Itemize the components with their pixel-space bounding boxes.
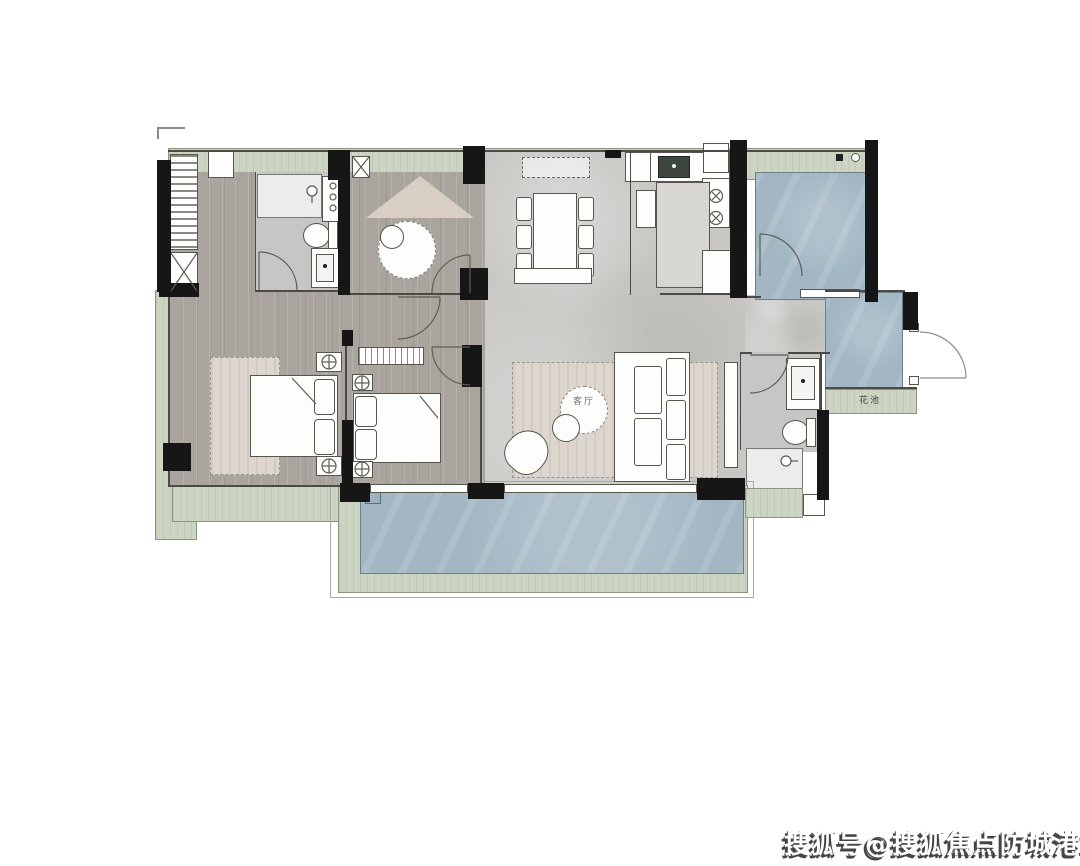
- service-balcony-floor: [755, 172, 867, 300]
- dining-chair: [516, 197, 532, 221]
- sofa-side-console: [724, 362, 738, 468]
- wall: [817, 410, 829, 500]
- pipe-hook-symbol: [157, 127, 185, 139]
- master-bath-toilet-bowl: [303, 223, 330, 248]
- wall-line: [345, 346, 347, 422]
- wall: [605, 150, 621, 158]
- wall: [157, 160, 171, 292]
- master-bed-pillow: [314, 379, 335, 415]
- entry-door-frame: [909, 376, 919, 385]
- wall: [903, 292, 918, 330]
- entry-porch-floor: [825, 292, 903, 389]
- wall-line: [825, 387, 917, 389]
- master-bath-shower-area: [257, 174, 322, 218]
- guest-bath-south-planter: [745, 488, 803, 518]
- wall: [460, 268, 488, 300]
- dining-sideboard: [522, 157, 590, 178]
- guest-bath-toilet-tank: [806, 418, 816, 447]
- sofa-seat-cushion: [634, 418, 662, 466]
- bedroom2-pillow: [355, 429, 377, 460]
- wall: [338, 172, 350, 295]
- wall: [342, 420, 353, 488]
- flower-bed-label: 花池: [840, 397, 900, 406]
- living-room-label: 客厅: [560, 398, 608, 407]
- master-nightstand: [316, 456, 342, 476]
- study-ac-box: [352, 156, 370, 178]
- sofa-back-cushion: [666, 444, 686, 480]
- guest-bath-shower-area: [746, 448, 803, 490]
- coffee-table-small: [552, 414, 580, 442]
- guest-bath-basin: [791, 366, 815, 400]
- wall: [865, 140, 878, 302]
- wall-line: [255, 172, 256, 292]
- wall: [463, 146, 485, 184]
- wall-line: [788, 352, 830, 354]
- wall-line: [168, 150, 872, 152]
- watermark-text: 搜狐号@搜狐焦点防城港站: [784, 824, 1080, 861]
- wall-line: [747, 296, 761, 298]
- kitchen-cabinet: [636, 190, 656, 228]
- wall-line: [630, 152, 631, 295]
- entry-hall-tile-floor: [745, 295, 830, 353]
- wall-line: [740, 352, 741, 450]
- wall: [468, 483, 504, 499]
- washer-symbol: [836, 154, 843, 161]
- wall-line: [255, 290, 345, 292]
- kitchen-pass-window: [703, 143, 729, 173]
- wall: [697, 478, 745, 500]
- wall-line: [170, 485, 345, 487]
- sofa-back-cushion: [666, 358, 686, 396]
- wall: [163, 443, 191, 471]
- wall-line: [740, 352, 752, 354]
- master-bath-basin: [316, 254, 334, 282]
- sofa-back-cushion: [666, 400, 686, 440]
- wall: [159, 283, 199, 297]
- window-box: [625, 152, 651, 182]
- wall: [340, 483, 370, 502]
- wall: [342, 330, 353, 346]
- wall: [730, 140, 747, 298]
- master-bath-toilet-tank: [328, 221, 338, 250]
- bedroom2-nightstand: [352, 461, 373, 478]
- fridge: [702, 250, 732, 294]
- wall-line: [820, 352, 822, 410]
- master-nightstand: [316, 352, 342, 372]
- dining-chair: [516, 225, 532, 249]
- dot-symbol: [851, 153, 860, 162]
- main-balcony-floor: [360, 490, 744, 574]
- kitchen-sink: [658, 156, 690, 178]
- entry-door: [920, 332, 966, 378]
- hall-wardrobe: [170, 154, 198, 250]
- bedroom2-nightstand: [352, 374, 373, 391]
- master-bed-pillow: [314, 419, 335, 455]
- balcony-sliding-door-sill: [370, 484, 468, 493]
- dining-chair: [578, 197, 594, 221]
- study-pouf: [380, 225, 404, 249]
- wall: [462, 345, 482, 387]
- bedroom2-wardrobe: [358, 347, 424, 365]
- dining-chair: [578, 225, 594, 249]
- bottom-left-planter-band: [172, 485, 345, 522]
- guest-bath-toilet-bowl: [782, 420, 809, 445]
- sofa-seat-cushion: [634, 366, 662, 414]
- window-box: [208, 150, 234, 178]
- tv-console: [514, 268, 592, 284]
- floor-plan: 花池 客厅: [0, 0, 1080, 866]
- bedroom2-pillow: [355, 396, 377, 427]
- balcony-sliding-door-sill: [504, 484, 697, 493]
